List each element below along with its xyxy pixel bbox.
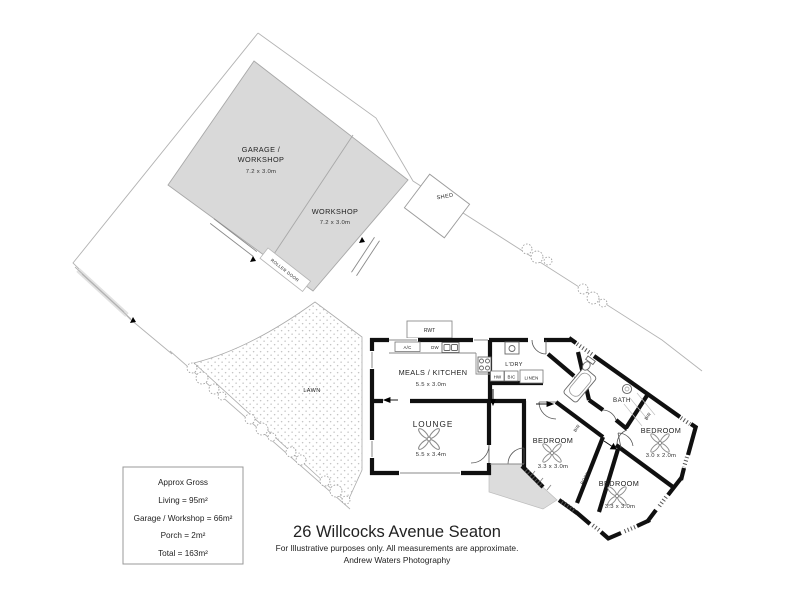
floor-plan-svg: LAWN ROLLER DOOR GARAGE / WORKSHOP 7.2 x… [0, 0, 800, 600]
bedroom3-label: BEDROOM [599, 479, 640, 488]
rainwater-tank: RWT [407, 321, 452, 338]
bedroom2-dims: 3.0 x 2.0m [646, 453, 677, 459]
linen-label: LINEN [525, 376, 539, 381]
legend-living: Living = 95m² [158, 496, 208, 505]
garage-label-2: WORKSHOP [238, 155, 285, 164]
legend-garage: Garage / Workshop = 66m² [134, 514, 233, 523]
legend-title: Approx Gross [158, 478, 208, 487]
ac-label: A/C [404, 345, 412, 350]
hw-label: HW [494, 375, 502, 380]
garage-dims: 7.2 x 3.0m [246, 169, 277, 175]
laundry-label: L'DRY [505, 362, 523, 368]
legend-porch: Porch = 2m² [161, 531, 206, 540]
legend: Approx Gross Living = 95m² Garage / Work… [123, 467, 243, 564]
page-background [0, 0, 800, 600]
page-title: 26 Willcocks Avenue Seaton [293, 523, 501, 541]
credit: Andrew Waters Photography [344, 555, 452, 565]
meals-kitchen-dims: 5.5 x 3.0m [416, 382, 447, 388]
lounge-label: LOUNGE [413, 420, 454, 429]
garage-label-1: GARAGE / [242, 145, 281, 154]
workshop-dims: 7.2 x 3.0m [320, 220, 351, 226]
bedroom2-label: BEDROOM [641, 426, 682, 435]
dw-label: DW [431, 345, 439, 350]
basin-icon [622, 384, 631, 393]
bedroom1-dims: 3.3 x 3.0m [538, 464, 569, 470]
legend-total: Total = 163m² [158, 549, 208, 558]
lounge-dims: 5.5 x 3.4m [416, 452, 447, 458]
workshop-label: WORKSHOP [312, 207, 359, 216]
bic-label: BIC [508, 375, 516, 380]
disclaimer: For Illustrative purposes only. All meas… [276, 543, 519, 553]
rwt-label: RWT [424, 328, 435, 334]
bedroom3-dims: 3.3 x 3.0m [605, 504, 636, 510]
meals-kitchen-label: MEALS / KITCHEN [399, 368, 468, 377]
bath-label: BATH [613, 397, 631, 404]
lawn-label: LAWN [303, 388, 320, 394]
bedroom1-label: BEDROOM [533, 436, 574, 445]
sink-icon [444, 345, 450, 351]
